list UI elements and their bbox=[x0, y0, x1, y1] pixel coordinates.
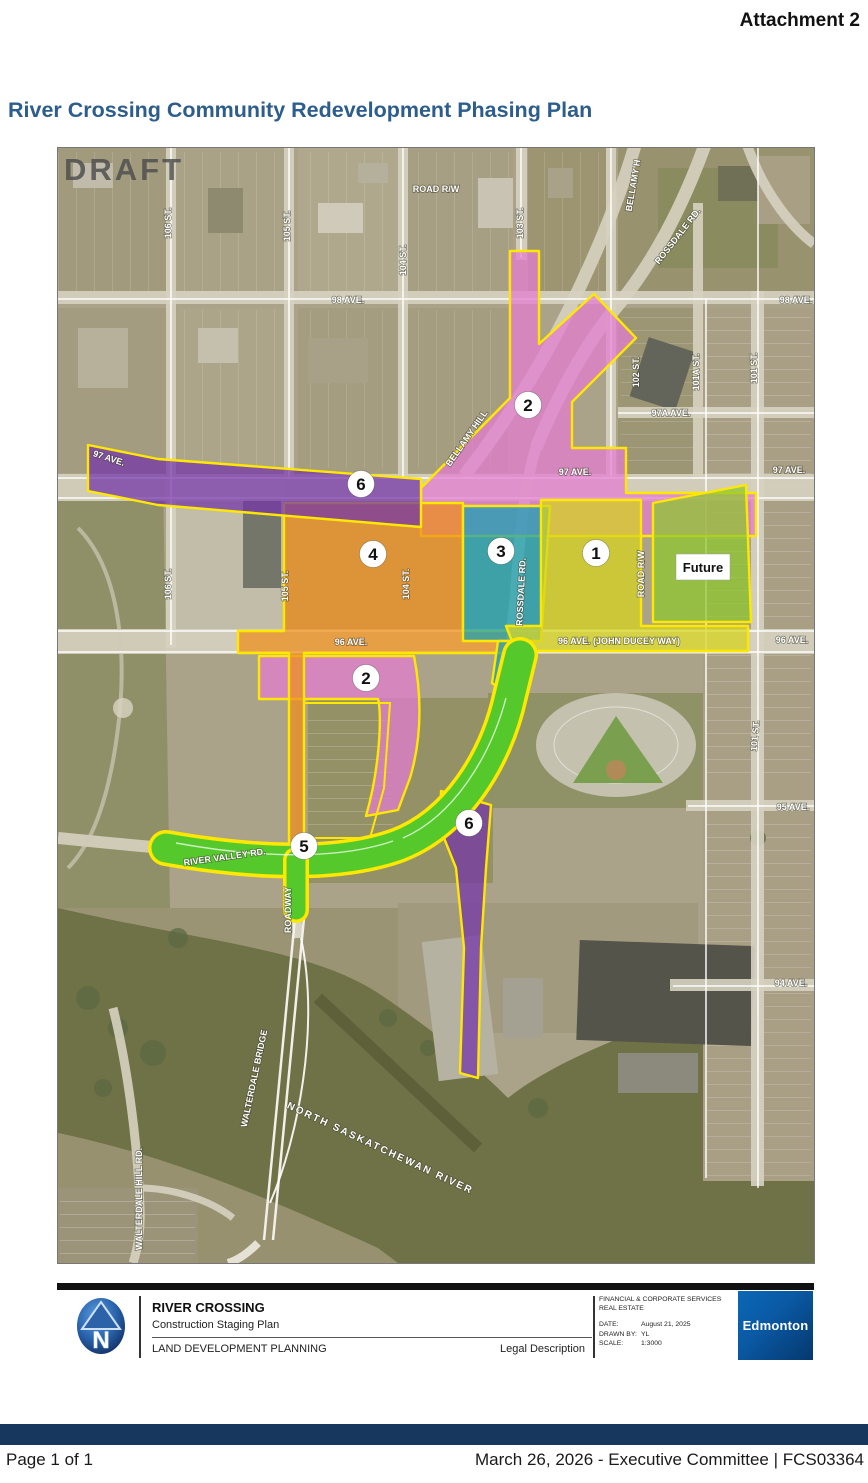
phase-number-badge: 3 bbox=[488, 538, 515, 565]
north-arrow-logo: N bbox=[75, 1296, 129, 1356]
svg-text:6: 6 bbox=[464, 814, 473, 833]
future-label-box: Future bbox=[676, 554, 730, 580]
phase-3-area bbox=[463, 506, 550, 641]
footer-bar bbox=[0, 1424, 868, 1445]
street-label: 97 AVE. bbox=[559, 467, 592, 477]
future-label: Future bbox=[683, 560, 723, 575]
org-line-2: REAL ESTATE bbox=[599, 1304, 729, 1313]
map-area: Future ROAD R/W106 ST.105 ST.104 ST.103 … bbox=[57, 147, 815, 1264]
org-line-1: FINANCIAL & CORPORATE SERVICES bbox=[599, 1295, 729, 1304]
staging-map: Future ROAD R/W106 ST.105 ST.104 ST.103 … bbox=[58, 148, 814, 1263]
svg-text:2: 2 bbox=[361, 669, 370, 688]
street-label: 101A ST. bbox=[691, 354, 701, 391]
drawn-by-value: YL bbox=[641, 1330, 649, 1339]
plan-subtitle: Construction Staging Plan bbox=[152, 1319, 279, 1331]
street-label: 96 AVE. bbox=[776, 635, 809, 645]
north-letter: N bbox=[92, 1327, 109, 1354]
street-label: ROAD R/W bbox=[636, 550, 646, 597]
street-label: 98 AVE. bbox=[780, 295, 813, 305]
phase-number-badge: 1 bbox=[583, 540, 610, 567]
date-value: August 21, 2025 bbox=[641, 1320, 691, 1329]
street-label: 96 AVE. (JOHN DUCEY WAY) bbox=[558, 636, 680, 646]
page-title: River Crossing Community Redevelopment P… bbox=[8, 98, 592, 123]
street-label: 106 ST. bbox=[163, 569, 173, 600]
svg-text:6: 6 bbox=[356, 475, 365, 494]
street-label: 104 ST. bbox=[401, 569, 411, 600]
street-label: 97A AVE. bbox=[652, 408, 691, 418]
title-block-rule bbox=[152, 1337, 592, 1338]
street-label: 104 ST. bbox=[398, 245, 408, 276]
drawn-by-label: DRAWN BY: bbox=[599, 1330, 641, 1339]
street-label: ROADWAY bbox=[283, 887, 293, 933]
svg-text:5: 5 bbox=[299, 837, 308, 856]
svg-text:4: 4 bbox=[368, 545, 378, 564]
street-label: 98 AVE. bbox=[332, 295, 365, 305]
street-label: 96 AVE. bbox=[335, 637, 368, 647]
svg-text:1: 1 bbox=[591, 544, 600, 563]
legal-description-label: Legal Description bbox=[477, 1343, 585, 1355]
phase-number-badge: 6 bbox=[456, 810, 483, 837]
document-page: Attachment 2 River Crossing Community Re… bbox=[0, 0, 868, 1483]
street-label: 95 AVE. bbox=[777, 802, 810, 812]
street-label: 101 ST. bbox=[749, 353, 759, 384]
street-label: 105 ST. bbox=[282, 211, 292, 242]
street-label: 105 ST. bbox=[280, 571, 290, 602]
phase-number-badge: 2 bbox=[353, 665, 380, 692]
edmonton-logo: Edmonton bbox=[738, 1291, 813, 1360]
street-label: 94 AVE. bbox=[775, 978, 808, 988]
title-block-meta: FINANCIAL & CORPORATE SERVICES REAL ESTA… bbox=[599, 1295, 729, 1348]
date-label: DATE: bbox=[599, 1320, 641, 1329]
scale-value: 1:3000 bbox=[641, 1339, 662, 1348]
title-block-divider-2 bbox=[593, 1296, 595, 1358]
scale-label: SCALE: bbox=[599, 1339, 641, 1348]
street-label: 102 ST. bbox=[631, 357, 641, 388]
street-label: 103 ST. bbox=[515, 208, 525, 239]
edmonton-logo-text: Edmonton bbox=[743, 1318, 809, 1333]
attachment-label: Attachment 2 bbox=[740, 10, 860, 32]
draft-watermark: DRAFT bbox=[64, 152, 184, 187]
meeting-reference: March 26, 2026 - Executive Committee | F… bbox=[475, 1450, 864, 1470]
phase-number-badge: 5 bbox=[291, 833, 318, 860]
phase-number-badge: 4 bbox=[360, 541, 387, 568]
phase-number-badge: 6 bbox=[348, 471, 375, 498]
title-block-divider-1 bbox=[139, 1296, 141, 1358]
street-label: 97 AVE. bbox=[773, 465, 806, 475]
svg-text:2: 2 bbox=[523, 396, 532, 415]
department-label: LAND DEVELOPMENT PLANNING bbox=[152, 1343, 327, 1355]
phase-number-badge: 2 bbox=[515, 392, 542, 419]
project-name: RIVER CROSSING bbox=[152, 1300, 265, 1315]
future-area bbox=[653, 485, 751, 622]
title-block: N RIVER CROSSING Construction Staging Pl… bbox=[57, 1290, 814, 1364]
street-label: ROAD R/W bbox=[413, 184, 460, 194]
street-label: 106 ST. bbox=[163, 208, 173, 239]
title-block-top-bar bbox=[57, 1283, 814, 1290]
page-number: Page 1 of 1 bbox=[6, 1450, 93, 1470]
svg-text:3: 3 bbox=[496, 542, 505, 561]
street-label: WALTERDALE HILL RD. bbox=[134, 1148, 144, 1250]
